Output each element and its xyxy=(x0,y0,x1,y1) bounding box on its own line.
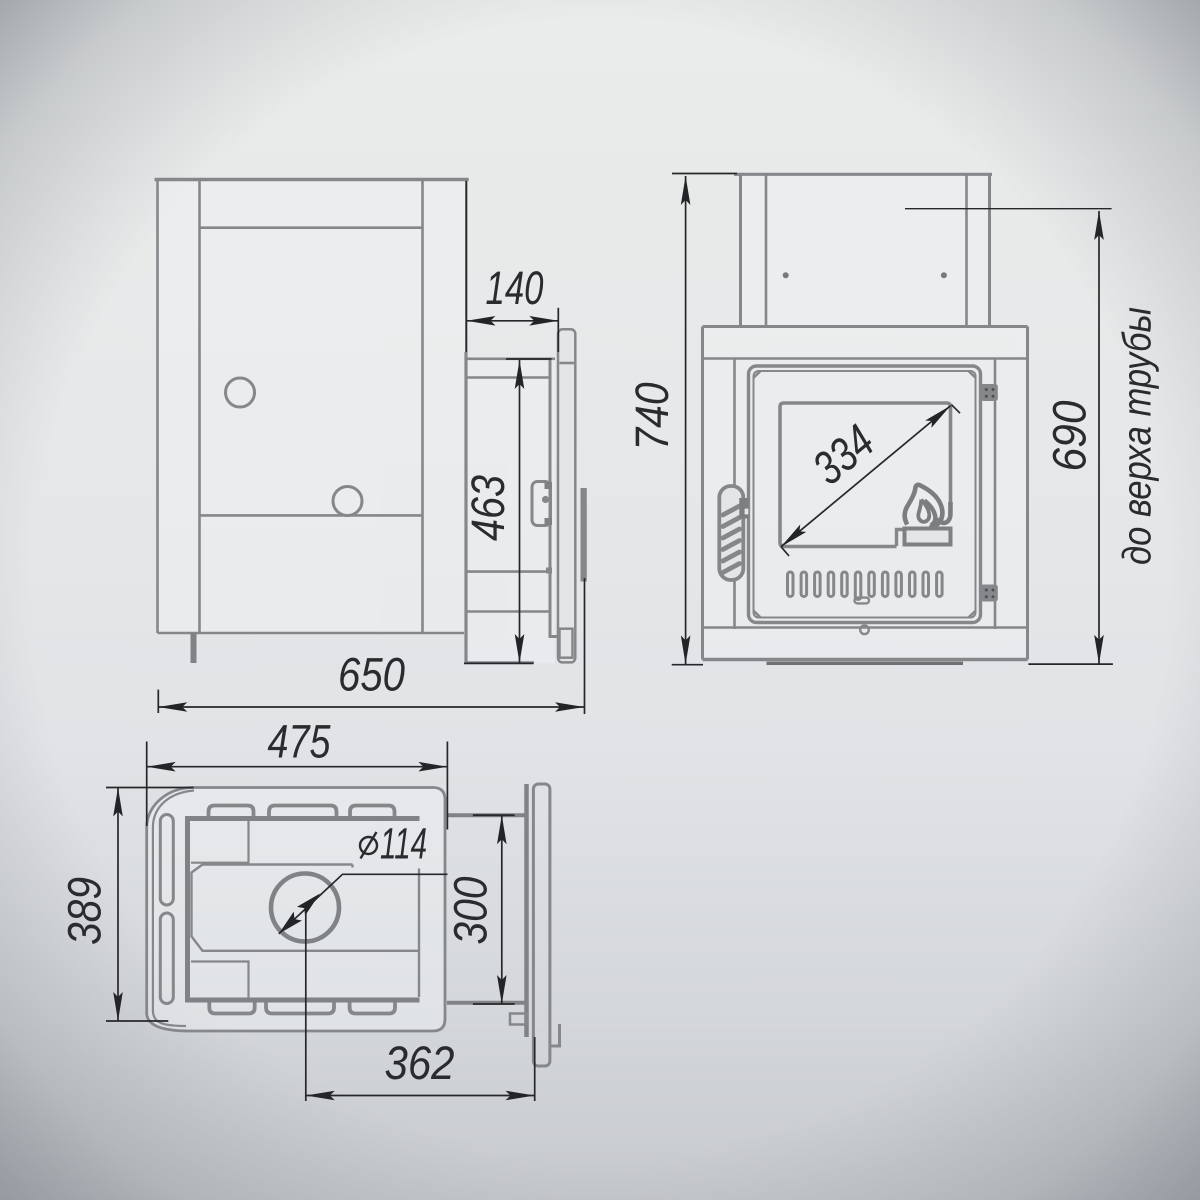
svg-text:389: 389 xyxy=(57,877,110,945)
svg-text:362: 362 xyxy=(385,1036,455,1089)
svg-text:300: 300 xyxy=(444,877,497,945)
svg-text:650: 650 xyxy=(338,648,405,701)
svg-text:475: 475 xyxy=(268,715,332,768)
svg-text:114: 114 xyxy=(380,820,427,869)
svg-text:690: 690 xyxy=(1042,401,1095,472)
svg-text:140: 140 xyxy=(486,261,544,314)
svg-text:463: 463 xyxy=(461,475,514,541)
svg-text:740: 740 xyxy=(625,383,678,451)
svg-text:до верха трубы: до верха трубы xyxy=(1116,307,1160,565)
